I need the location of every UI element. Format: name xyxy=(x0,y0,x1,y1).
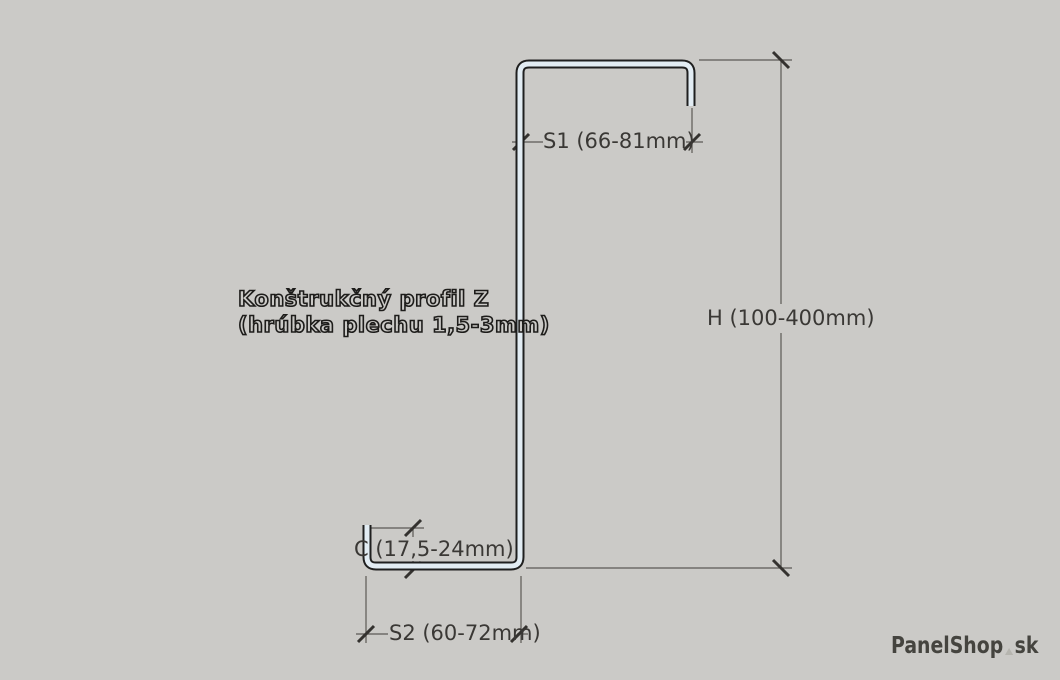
watermark-suffix: sk xyxy=(1015,633,1039,659)
watermark-panelshop: PanelShop sk xyxy=(891,633,1038,659)
dimension-label-s1: S1 (66-81mm) xyxy=(543,129,695,153)
diagram-title-line1: Konštrukčný profil Z xyxy=(238,286,550,312)
droplet-icon xyxy=(1005,648,1013,655)
diagram-title: Konštrukčný profil Z (hrúbka plechu 1,5-… xyxy=(238,286,550,338)
dimension-label-s2: S2 (60-72mm) xyxy=(389,621,541,645)
dimension-label-c: C (17,5-24mm) xyxy=(354,537,514,561)
diagram-canvas: S1 (66-81mm) H (100-400mm) C (17,5-24mm)… xyxy=(0,0,1060,680)
diagram-title-line2: (hrúbka plechu 1,5-3mm) xyxy=(238,312,550,338)
z-profile-technical-drawing xyxy=(0,0,1060,680)
dimension-label-h: H (100-400mm) xyxy=(707,306,875,330)
watermark-brand: PanelShop xyxy=(891,633,1003,659)
